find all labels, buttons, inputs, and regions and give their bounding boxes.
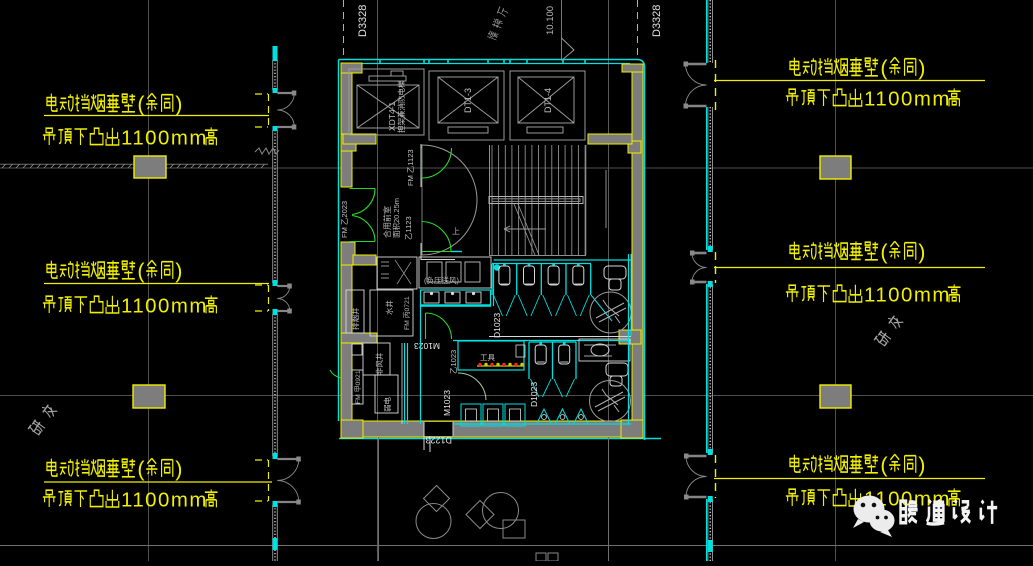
svg-text:): ): [918, 453, 925, 477]
svg-text:): ): [918, 56, 925, 80]
svg-text:FM 乙2023: FM 乙2023: [340, 201, 349, 238]
svg-text:乙1123: 乙1123: [404, 216, 413, 240]
svg-text:FM 乙1123: FM 乙1123: [406, 149, 415, 186]
svg-text:(: (: [880, 453, 888, 477]
svg-text:DT1-3: DT1-3: [463, 88, 473, 113]
svg-text:(负压送风): (负压送风): [424, 275, 459, 285]
svg-text:M1023: M1023: [414, 341, 440, 351]
svg-text:): ): [175, 92, 182, 116]
svg-text:排烟井: 排烟井: [350, 307, 360, 330]
svg-text:上: 上: [452, 227, 460, 236]
svg-text:1100mm: 1100mm: [121, 489, 208, 511]
svg-text:1100mm: 1100mm: [121, 295, 208, 317]
svg-text:合用前室: 合用前室: [382, 206, 392, 238]
svg-text:D1023: D1023: [492, 313, 502, 338]
svg-text:1100mm: 1100mm: [864, 88, 951, 110]
svg-text:非风井: 非风井: [374, 352, 384, 375]
svg-text:): ): [175, 457, 182, 481]
svg-text:M1023: M1023: [442, 390, 452, 416]
svg-text:D3328: D3328: [357, 5, 369, 37]
svg-text:): ): [175, 259, 182, 283]
svg-text:(: (: [137, 259, 145, 283]
svg-text:(: (: [880, 56, 888, 80]
svg-text:水井: 水井: [384, 300, 394, 315]
svg-text:FM 丙0721: FM 丙0721: [403, 296, 411, 330]
svg-text:乙1023: 乙1023: [449, 350, 458, 374]
svg-text:面积20.25m: 面积20.25m: [391, 198, 401, 238]
svg-text:FM 甲0921: FM 甲0921: [354, 370, 362, 404]
svg-text:弱电: 弱电: [382, 397, 392, 412]
svg-text:10.100: 10.100: [545, 6, 556, 35]
svg-text:XDT4-1: XDT4-1: [387, 101, 397, 131]
svg-text:(: (: [137, 457, 145, 481]
svg-text:1100mm: 1100mm: [864, 284, 951, 306]
svg-text:(: (: [137, 92, 145, 116]
svg-text:工具: 工具: [480, 353, 495, 362]
svg-text:(: (: [880, 240, 888, 264]
svg-text:DT1-4: DT1-4: [543, 88, 553, 113]
svg-text:): ): [918, 240, 925, 264]
svg-text:1100mm: 1100mm: [121, 127, 208, 149]
svg-text:D1023: D1023: [529, 382, 539, 407]
svg-text:D1223: D1223: [425, 435, 452, 445]
svg-text:担架兼消防电梯: 担架兼消防电梯: [396, 80, 406, 133]
svg-text:D3328: D3328: [651, 5, 663, 37]
